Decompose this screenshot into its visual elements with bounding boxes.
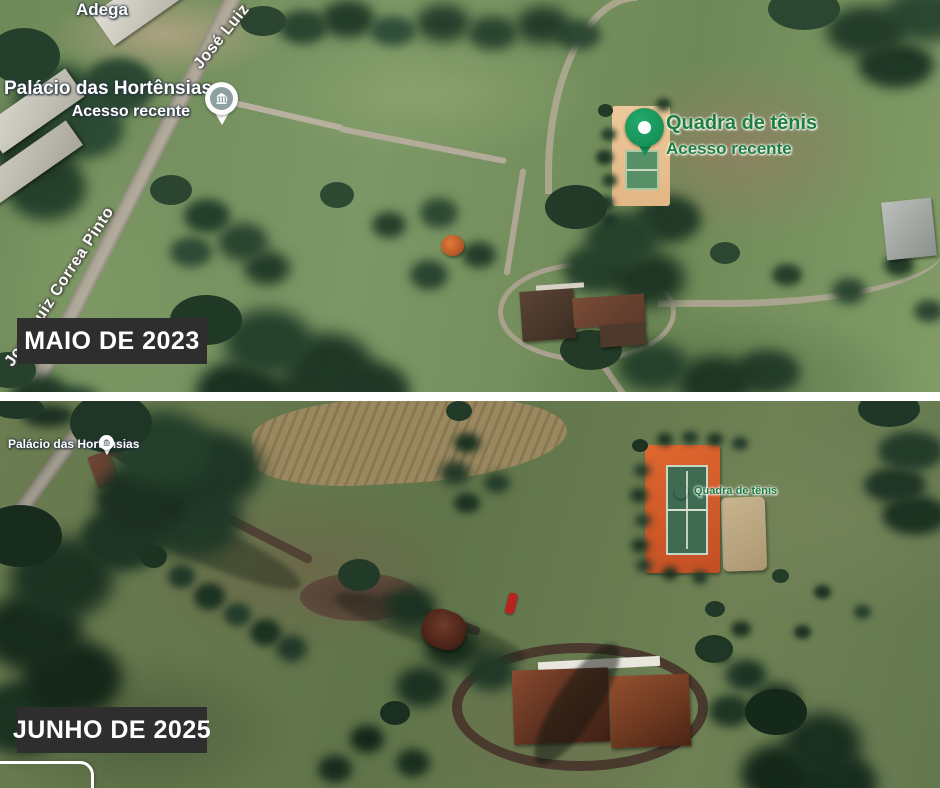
museum-building-icon xyxy=(210,87,233,110)
poi-label-palacio[interactable]: Palácio das Hortênsias xyxy=(4,78,196,100)
red-car xyxy=(505,592,519,615)
pin-center-dot xyxy=(638,121,651,134)
tennis-map-pin[interactable] xyxy=(625,108,665,162)
palacio-map-pin[interactable] xyxy=(99,435,115,457)
tree-cluster-bottom-right xyxy=(745,689,807,735)
period-badge-may-2023: MAIO DE 2023 xyxy=(17,318,207,364)
court-hedges xyxy=(632,439,648,452)
sand-area xyxy=(721,496,768,571)
main-building-roof xyxy=(519,288,576,342)
tennis-map-pin[interactable] xyxy=(674,485,688,499)
tree-cluster xyxy=(710,242,740,264)
shrub-scatter xyxy=(705,601,725,617)
tree-cluster xyxy=(150,175,192,205)
tilled-field xyxy=(250,401,569,491)
satellite-panel-may-2023: José Luiz José Luiz Correa Pinto Adega P… xyxy=(0,0,940,392)
poi-label-palacio[interactable]: Palácio das Hortênsias xyxy=(8,437,139,451)
shed-roof xyxy=(881,198,937,261)
tree-cluster xyxy=(320,182,354,208)
tree-cluster xyxy=(0,28,60,84)
main-building-right-wing xyxy=(609,674,691,749)
satellite-comparison: José Luiz José Luiz Correa Pinto Adega P… xyxy=(0,0,940,788)
poi-sublabel-tennis: Acesso recente xyxy=(666,139,792,159)
court-hedges xyxy=(598,104,613,117)
gazebo-roof xyxy=(441,235,464,256)
tree-cluster xyxy=(0,401,44,419)
tree-mass-left-edge xyxy=(0,505,62,567)
tree-cluster xyxy=(858,401,920,427)
tree-cluster-central xyxy=(338,559,380,591)
main-building-roof xyxy=(599,322,646,347)
tennis-court-center-line xyxy=(686,471,688,549)
pine-row xyxy=(140,545,167,568)
poi-label-adega[interactable]: Adega xyxy=(76,0,128,20)
poi-sublabel-palacio: Acesso recente xyxy=(4,103,190,121)
driveway-segment xyxy=(504,168,527,276)
satellite-panel-june-2025: Palácio das Hortênsias Quadra de tênis J… xyxy=(0,401,940,788)
minimap-toggle[interactable] xyxy=(0,761,94,788)
poi-label-tennis[interactable]: Quadra de tênis xyxy=(666,112,817,135)
driveway-segment xyxy=(339,126,507,164)
tree-column xyxy=(446,401,472,421)
tree-cluster xyxy=(545,185,607,229)
tree-cluster xyxy=(695,635,733,663)
shrub-scatter xyxy=(772,569,789,583)
tennis-court-net-line xyxy=(627,169,657,171)
museum-building-icon xyxy=(99,435,114,450)
period-badge-june-2025: JUNHO DE 2025 xyxy=(17,707,207,753)
shrub-scatter xyxy=(380,701,410,725)
tree-cluster xyxy=(768,0,840,30)
poi-label-tennis[interactable]: Quadra de tênis xyxy=(694,485,777,497)
palacio-map-pin[interactable] xyxy=(205,82,239,130)
